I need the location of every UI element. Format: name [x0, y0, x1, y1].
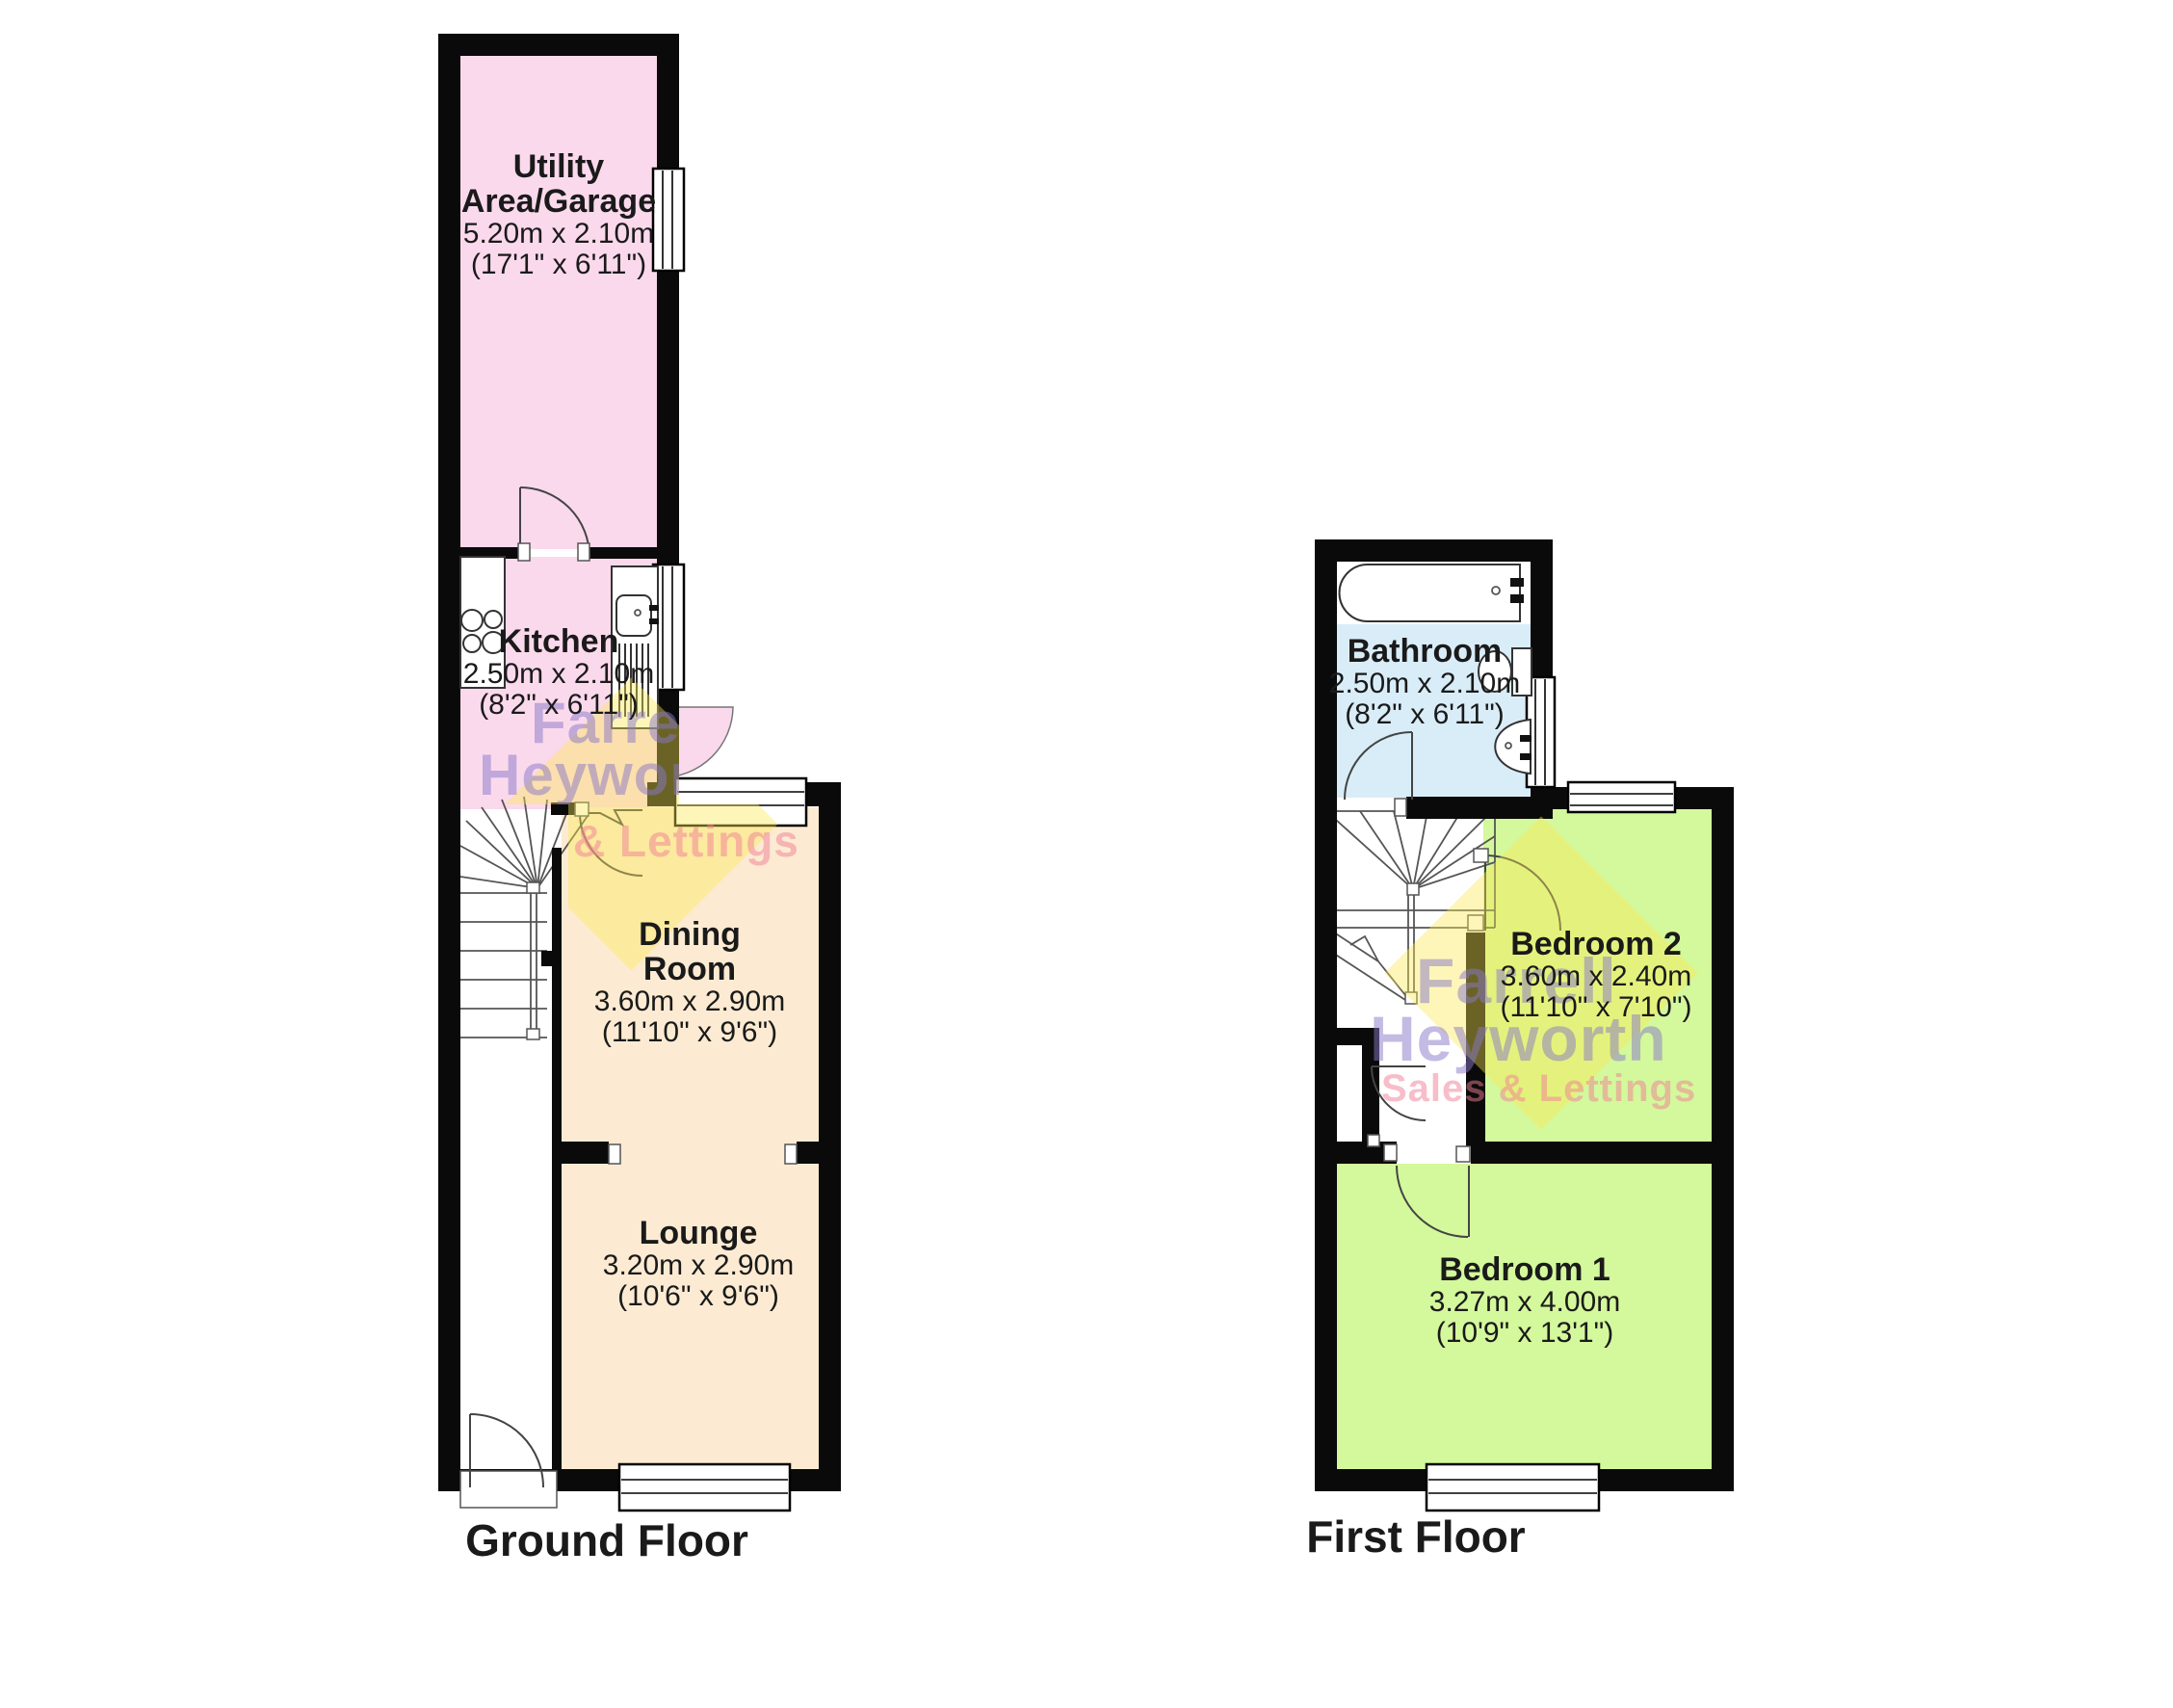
room-label-bedroom-2: Bedroom 2 3.60m x 2.40m (11'10" x 7'10") — [1437, 927, 1755, 1024]
bath-tap — [1510, 578, 1524, 587]
room-dimensions-imperial: (10'9" x 13'1") — [1436, 1318, 1614, 1349]
room-dimensions-imperial: (11'10" x 7'10") — [1501, 992, 1692, 1023]
stair-newel — [527, 1029, 539, 1039]
room-dimensions-imperial: (8'2" x 6'11") — [1345, 699, 1505, 730]
room-dimensions-metric: 3.20m x 2.90m — [603, 1250, 794, 1281]
bath-tap — [1510, 594, 1524, 603]
room-label-bedroom-1: Bedroom 1 3.27m x 4.00m (10'9" x 13'1") — [1361, 1252, 1689, 1350]
room-name: Kitchen — [499, 624, 619, 659]
stair-newel — [527, 882, 539, 893]
room-dimensions-imperial: (10'6" x 9'6") — [617, 1281, 779, 1312]
room-label-lounge: Lounge 3.20m x 2.90m (10'6" x 9'6") — [573, 1216, 824, 1313]
stair-edges — [1326, 811, 1495, 928]
room-label-bathroom: Bathroom 2.50m x 2.10m (8'2" x 6'11") — [1295, 634, 1555, 731]
room-name: Lounge — [640, 1216, 758, 1250]
room-dimensions-metric: 3.27m x 4.00m — [1429, 1287, 1620, 1318]
room-dimensions-imperial: (8'2" x 6'11") — [479, 690, 639, 721]
stair-break-line2 — [1328, 950, 1405, 1000]
cupboard-door — [1372, 1066, 1426, 1120]
stair-winder-treads — [1326, 811, 1495, 889]
floorplan-page: Farrell Heyworth Sales & Lettings Farrel… — [0, 0, 2173, 1708]
room-name: Bedroom 2 — [1510, 927, 1682, 961]
bedroom1-window — [1427, 1464, 1599, 1511]
room-dimensions-metric: 3.60m x 2.90m — [594, 986, 785, 1017]
ground-floor-title: Ground Floor — [414, 1514, 799, 1566]
room-dimensions-imperial: (11'10" x 9'6") — [602, 1017, 777, 1048]
stair-handrail — [531, 891, 537, 1033]
dining-bay-window — [675, 778, 806, 826]
room-name: Dining Room — [598, 917, 781, 986]
room-dimensions-metric: 3.60m x 2.40m — [1501, 961, 1691, 992]
basin-tap — [1520, 753, 1532, 760]
utility-room-fill — [460, 56, 657, 549]
room-name: Bathroom — [1348, 634, 1503, 669]
bedroom2-window — [1568, 782, 1675, 812]
room-label-kitchen: Kitchen 2.50m x 2.10m (8'2" x 6'11") — [414, 624, 703, 722]
first-floor-title: First Floor — [1223, 1511, 1609, 1563]
room-dimensions-imperial: (17'1" x 6'11") — [471, 250, 646, 280]
lounge-window — [619, 1464, 790, 1511]
sink-tap — [649, 605, 659, 611]
stair-newel — [1405, 992, 1417, 1004]
basin-tap — [1520, 735, 1532, 742]
room-name: Bedroom 1 — [1439, 1252, 1610, 1287]
room-dimensions-metric: 5.20m x 2.10m — [463, 219, 654, 250]
room-label-utility: Utility Area/Garage 5.20m x 2.10m (17'1"… — [433, 149, 684, 281]
room-dimensions-metric: 2.50m x 2.10m — [463, 659, 654, 690]
room-label-dining-room: Dining Room 3.60m x 2.90m (11'10" x 9'6"… — [598, 917, 781, 1049]
room-name: Utility Area/Garage — [433, 149, 684, 219]
stair-treads — [460, 893, 547, 1038]
room-dimensions-metric: 2.50m x 2.10m — [1329, 669, 1520, 699]
stair-newel — [1407, 883, 1419, 895]
floorplan-graphics — [0, 0, 2173, 1708]
